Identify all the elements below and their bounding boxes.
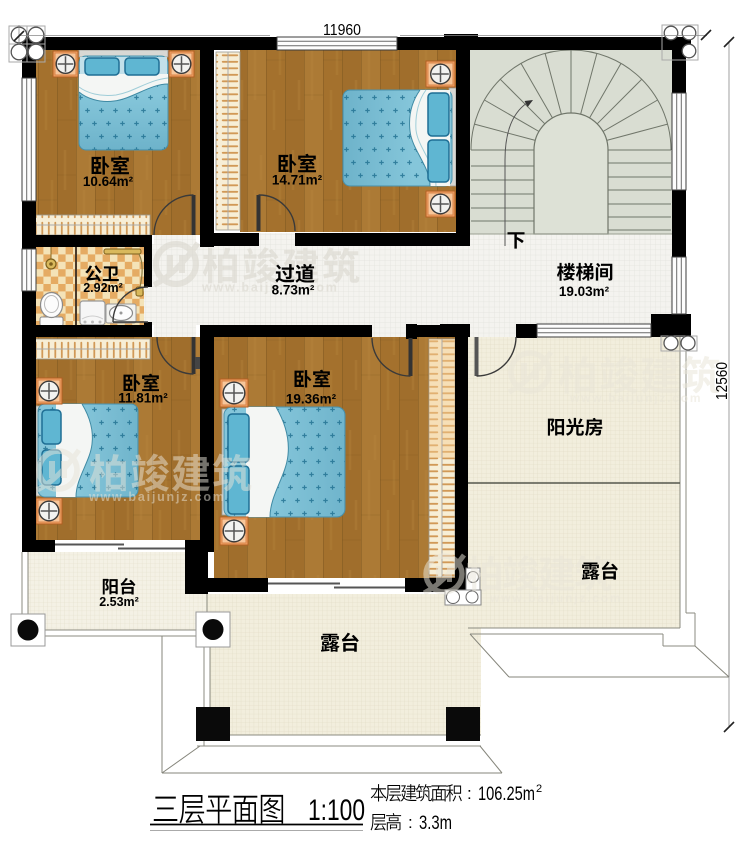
svg-text:www.baijunjz.com: www.baijunjz.com	[489, 591, 622, 605]
svg-text:1:100: 1:100	[308, 794, 365, 827]
svg-text:10.64m²: 10.64m²	[83, 174, 134, 189]
svg-text:19.36m²: 19.36m²	[286, 392, 337, 407]
svg-text::: :	[467, 784, 472, 803]
svg-text:2.53m²: 2.53m²	[99, 595, 139, 609]
svg-text:2: 2	[536, 783, 542, 795]
svg-text:www.baijunjz.com: www.baijunjz.com	[569, 391, 702, 405]
svg-text:www.baijunjz.com: www.baijunjz.com	[201, 281, 339, 295]
svg-text::: :	[408, 813, 413, 832]
svg-text:www.baijunjz.com: www.baijunjz.com	[88, 490, 226, 504]
svg-text:12560: 12560	[714, 362, 731, 400]
svg-text:106.25m: 106.25m	[478, 784, 535, 805]
svg-text:8.73m²: 8.73m²	[272, 283, 315, 298]
svg-text:14.71m²: 14.71m²	[272, 173, 323, 188]
svg-text:3.3m: 3.3m	[419, 813, 452, 834]
svg-text:11.81m²: 11.81m²	[118, 391, 168, 406]
svg-text:19.03m²: 19.03m²	[559, 284, 610, 299]
svg-text:11960: 11960	[323, 22, 361, 39]
svg-text:2.92m²: 2.92m²	[83, 281, 123, 295]
